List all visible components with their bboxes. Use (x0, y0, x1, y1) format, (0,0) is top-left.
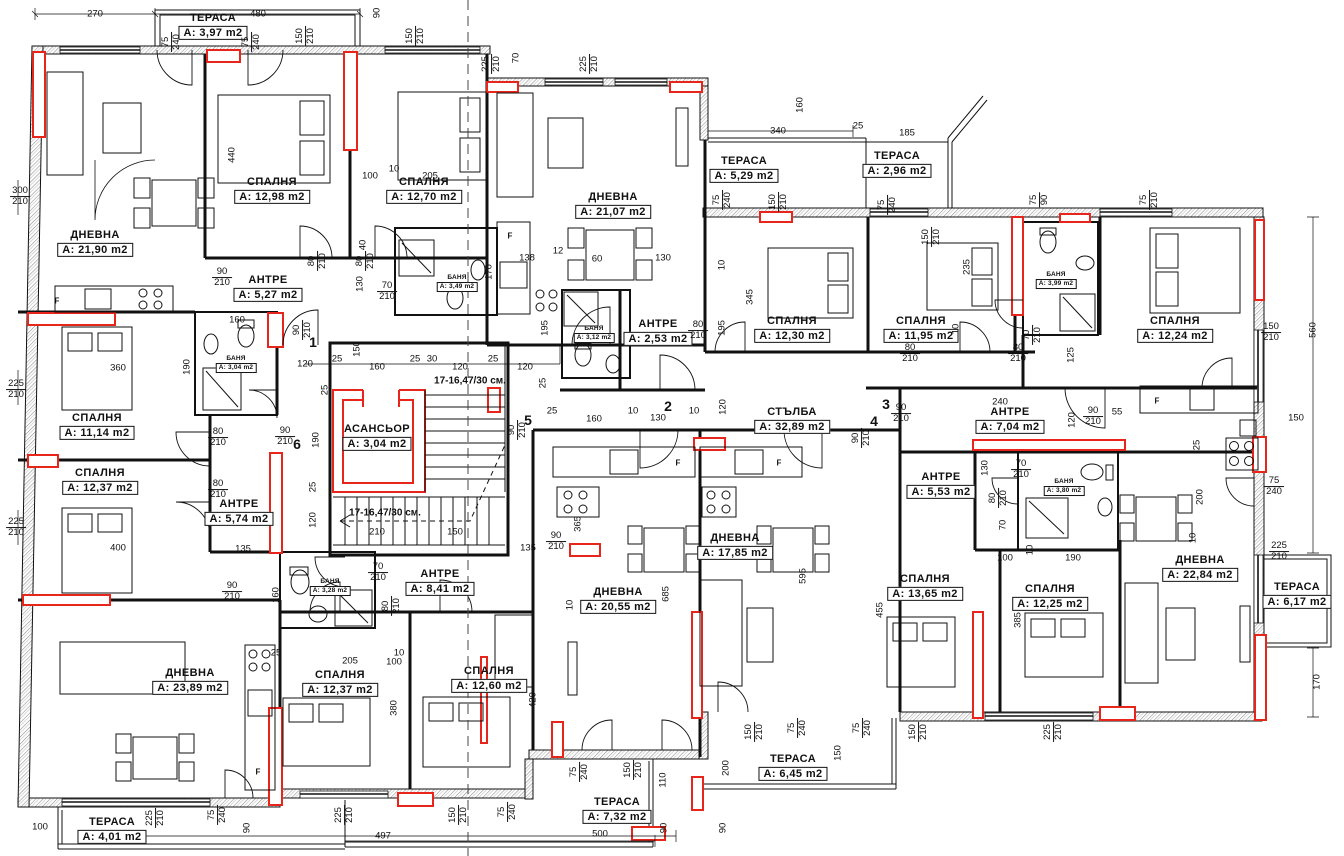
dimension-label: 90 (242, 823, 253, 834)
dimension-label: 120 (308, 512, 319, 528)
dimension-label: 360 (110, 363, 126, 374)
dimension-label: 400 (110, 543, 126, 554)
room-area: A: 12,70 m2 (386, 190, 462, 205)
room-label: СПАЛНЯA: 12,37 m2 (302, 669, 378, 697)
dimension-label: 10 (1188, 533, 1199, 544)
dimension-label: 90 (718, 823, 729, 834)
room-label: ТЕРАСАA: 3,97 m2 (178, 12, 247, 40)
dimension-label: 225210 (6, 379, 26, 401)
dimension-label: 200 (1195, 489, 1206, 505)
dimension-label: 90210 (212, 267, 232, 289)
room-area: A: 21,07 m2 (575, 205, 651, 220)
dimension-label: 25 (271, 648, 282, 659)
room-name: ДНЕВНА (1162, 554, 1238, 567)
room-name: СПАЛНЯ (234, 176, 310, 189)
dimension-label: 80210 (208, 479, 228, 501)
room-name: СПАЛНЯ (887, 573, 963, 586)
room-label: АНТРЕA: 7,04 m2 (975, 406, 1044, 434)
dimension-label: 80210 (208, 427, 228, 449)
room-area: A: 22,84 m2 (1162, 568, 1238, 583)
dimension-label: 90210 (222, 581, 242, 603)
room-label: ТЕРАСАA: 4,01 m2 (77, 816, 146, 844)
room-area: A: 12,30 m2 (754, 329, 830, 344)
dimension-label: 80210 (988, 488, 1010, 508)
dimension-label: 195 (540, 320, 551, 336)
dimension-label: 75240 (241, 32, 263, 52)
room-area: A: 5,27 m2 (233, 288, 302, 303)
fridge-letter: F (1155, 397, 1160, 406)
dimension-label: 150210 (908, 722, 930, 742)
stair-note: 17-16,47/30 см. (349, 508, 421, 519)
dimension-label: 340 (770, 126, 786, 137)
dimension-label: 10 (394, 648, 405, 659)
room-name: БАНЯ (216, 355, 257, 362)
dimension-label: 120 (452, 362, 468, 373)
apartment-number: 6 (293, 436, 301, 452)
room-name: БАНЯ (310, 578, 351, 585)
dimension-label: 55 (1112, 407, 1123, 418)
room-area: A: 11,95 m2 (884, 329, 959, 344)
dimension-label: 160 (795, 97, 806, 113)
room-name: АНТРЕ (405, 568, 474, 581)
room-label: СПАЛНЯA: 12,37 m2 (62, 467, 138, 495)
dimension-label: 10 (628, 406, 639, 417)
dimension-label: 120 (297, 359, 313, 370)
dimension-label: 270 (87, 9, 103, 20)
room-label: СПАЛНЯA: 13,65 m2 (887, 573, 963, 601)
dimension-label: 80210 (900, 343, 920, 365)
apartment-number: 4 (870, 413, 878, 429)
dimension-label: 135 (520, 543, 536, 554)
dimension-label: 25 (410, 354, 421, 365)
room-name: СПАЛНЯ (754, 315, 830, 328)
room-area: A: 3,97 m2 (178, 26, 247, 41)
dimension-label: 150 (1288, 413, 1304, 424)
dimension-label: 300210 (10, 186, 30, 208)
dimension-label: 150210 (768, 192, 790, 212)
apartment-number: 2 (664, 398, 672, 414)
room-label: СПАЛНЯA: 11,95 m2 (884, 315, 959, 343)
dimension-label: 75240 (497, 802, 519, 822)
room-area: A: 21,90 m2 (57, 243, 133, 258)
dimension-label: 130 (650, 413, 666, 424)
apartment-number: 3 (882, 396, 890, 412)
room-label: АСАНСЬОРA: 3,04 m2 (342, 423, 411, 451)
dimension-label: 195 (717, 320, 728, 336)
dimension-label: 210 (369, 527, 385, 538)
room-name: АНТРЕ (975, 406, 1044, 419)
dimension-label: 225210 (145, 808, 167, 828)
dimension-label: 385 (1013, 612, 1024, 628)
room-area: A: 3,28 m2 (310, 587, 351, 596)
dimension-label: 25 (308, 482, 319, 493)
dimension-label: 100 (997, 553, 1013, 564)
dimension-label: 130 (980, 460, 991, 476)
room-name: СТЪЛБА (754, 406, 830, 419)
room-name: БАНЯ (437, 274, 478, 281)
dimension-label: 150210 (921, 227, 943, 247)
dimension-label: 120 (1067, 412, 1078, 428)
dimension-label: 200 (721, 760, 732, 776)
room-label: ДНЕВНАA: 22,84 m2 (1162, 554, 1238, 582)
room-label: ТЕРАСАA: 6,17 m2 (1262, 581, 1331, 609)
dimension-label: 170 (484, 264, 495, 280)
dimension-label: 240 (992, 397, 1008, 408)
dimension-label: 225210 (481, 54, 503, 74)
dimension-label: 150210 (1261, 322, 1281, 344)
dimension-label: 130 (655, 253, 671, 264)
room-area: A: 3,49 m2 (437, 283, 478, 292)
room-label: ТЕРАСАA: 2,96 m2 (862, 150, 931, 178)
dimension-label: 160 (229, 315, 245, 326)
dimension-label: 225210 (579, 54, 601, 74)
dimension-label: 100 (362, 171, 378, 182)
dimension-label: 75210 (1139, 190, 1161, 210)
room-label: АНТРЕA: 8,41 m2 (405, 568, 474, 596)
dimension-label: 225210 (1043, 722, 1065, 742)
dimension-label: 345 (745, 289, 756, 305)
dimension-label: 150 (447, 527, 463, 538)
room-area: A: 3,99 m2 (1036, 280, 1077, 289)
room-name: СПАЛНЯ (1012, 583, 1088, 596)
room-name: ТЕРАСА (862, 150, 931, 163)
dimension-label: 80210 (355, 251, 377, 271)
fridge-letter: F (777, 459, 782, 468)
room-area: A: 17,85 m2 (697, 546, 773, 561)
room-label: СПАЛНЯA: 12,24 m2 (1137, 315, 1213, 343)
room-name: ДНЕВНА (57, 229, 133, 242)
dimension-label: 455 (875, 602, 886, 618)
dimension-label: 90210 (1083, 406, 1103, 428)
dimension-label: 60 (592, 254, 603, 265)
room-name: ТЕРАСА (709, 155, 778, 168)
room-name: АНТРЕ (233, 274, 302, 287)
dimension-label: 80210 (307, 251, 329, 271)
dimension-label: 125 (1066, 347, 1077, 363)
dimension-label: 560 (1308, 322, 1319, 338)
dimension-label: 500 (592, 829, 608, 840)
labels-overlay: ТЕРАСАA: 3,97 m2СПАЛНЯA: 12,98 m2СПАЛНЯA… (0, 0, 1344, 856)
dimension-label: 205 (342, 656, 358, 667)
dimension-label: 80210 (688, 320, 708, 342)
dimension-label: 480 (250, 9, 266, 20)
dimension-label: 70210 (1011, 459, 1031, 481)
dimension-label: 190 (182, 359, 193, 375)
dimension-label: 380 (389, 700, 400, 716)
dimension-label: 10 (389, 164, 400, 175)
dimension-label: 120 (718, 399, 729, 415)
room-label: АНТРЕA: 5,74 m2 (204, 498, 273, 526)
room-label: СТЪЛБАA: 32,89 m2 (754, 406, 830, 434)
dimension-label: 190 (311, 432, 322, 448)
dimension-label: 10 (1025, 545, 1036, 556)
room-area: A: 3,80 m2 (1044, 487, 1085, 496)
dimension-label: 90210 (891, 403, 911, 425)
room-label: БАНЯA: 3,49 m2 (437, 274, 478, 292)
dimension-label: 190 (1065, 553, 1081, 564)
apartment-number: 1 (309, 334, 317, 350)
dimension-label: 150210 (295, 26, 317, 46)
room-area: A: 3,12 m2 (574, 334, 615, 343)
dimension-label: 10 (565, 600, 576, 611)
dimension-label: 150210 (744, 722, 766, 742)
dimension-label: 80210 (381, 596, 403, 616)
room-label: СПАЛНЯA: 12,25 m2 (1012, 583, 1088, 611)
dimension-label: 150210 (405, 26, 427, 46)
room-label: АНТРЕA: 2,53 m2 (623, 318, 692, 346)
room-area: A: 32,89 m2 (754, 420, 830, 435)
room-area: A: 20,55 m2 (580, 600, 656, 615)
room-name: БАНЯ (1044, 478, 1085, 485)
room-label: ДНЕВНАA: 21,07 m2 (575, 191, 651, 219)
dimension-label: 90 (659, 823, 670, 834)
room-name: АСАНСЬОР (342, 423, 411, 436)
room-label: СПАЛНЯA: 11,14 m2 (60, 412, 135, 440)
dimension-label: 70210 (1022, 325, 1044, 345)
dimension-label: 7590 (1029, 193, 1051, 208)
dimension-label: 185 (899, 128, 915, 139)
room-area: A: 12,98 m2 (234, 190, 310, 205)
dimension-label: 225210 (6, 517, 26, 539)
room-name: БАНЯ (574, 325, 615, 332)
room-name: ДНЕВНА (152, 667, 228, 680)
dimension-label: 75240 (877, 195, 899, 215)
room-area: A: 12,24 m2 (1137, 329, 1213, 344)
dimension-label: 10 (951, 324, 962, 335)
dimension-label: 70210 (377, 281, 397, 303)
floor-plan: ТЕРАСАA: 3,97 m2СПАЛНЯA: 12,98 m2СПАЛНЯA… (0, 0, 1344, 856)
dimension-label: 75240 (1264, 476, 1284, 498)
dimension-label: 90 (372, 8, 383, 19)
dimension-label: 25 (538, 378, 549, 389)
dimension-label: 160 (586, 414, 602, 425)
room-label: ТЕРАСАA: 7,32 m2 (582, 796, 651, 824)
room-area: A: 6,17 m2 (1262, 595, 1331, 610)
dimension-label: 685 (661, 586, 672, 602)
room-name: ТЕРАСА (77, 816, 146, 829)
room-area: A: 5,74 m2 (204, 512, 273, 527)
room-name: СПАЛНЯ (60, 412, 135, 425)
dimension-label: 25 (332, 354, 343, 365)
dimension-label: 70 (998, 520, 1009, 531)
room-area: A: 5,53 m2 (906, 485, 975, 500)
dimension-label: 135 (235, 544, 251, 555)
fridge-letter: F (55, 297, 60, 306)
room-name: АНТРЕ (906, 471, 975, 484)
room-area: A: 7,32 m2 (582, 810, 651, 825)
dimension-label: 170 (1312, 674, 1323, 690)
room-area: A: 11,14 m2 (60, 426, 135, 441)
dimension-label: 30 (427, 354, 438, 365)
dimension-label: 70 (511, 53, 522, 64)
room-name: ТЕРАСА (178, 12, 247, 25)
room-label: БАНЯA: 3,28 m2 (310, 578, 351, 596)
room-label: СПАЛНЯA: 12,60 m2 (451, 665, 527, 693)
room-name: ДНЕВНА (580, 586, 656, 599)
room-area: A: 5,29 m2 (709, 169, 778, 184)
dimension-label: 160 (271, 587, 282, 603)
room-label: ДНЕВНАA: 23,89 m2 (152, 667, 228, 695)
dimension-label: 75240 (787, 718, 809, 738)
dimension-label: 75240 (852, 718, 874, 738)
dimension-label: 420 (528, 692, 539, 708)
room-label: СПАЛНЯA: 12,30 m2 (754, 315, 830, 343)
dimension-label: 25 (320, 385, 331, 396)
dimension-label: 90210 (275, 426, 295, 448)
room-name: ТЕРАСА (1262, 581, 1331, 594)
dimension-label: 25 (547, 406, 558, 417)
room-area: A: 3,04 m2 (216, 364, 257, 373)
room-area: A: 3,04 m2 (342, 437, 411, 452)
room-name: СПАЛНЯ (1137, 315, 1213, 328)
dimension-label: 440 (227, 147, 238, 163)
room-label: БАНЯA: 3,80 m2 (1044, 478, 1085, 496)
dimension-label: 225210 (334, 805, 356, 825)
dimension-label: 138 (519, 253, 535, 264)
dimension-label: 225210 (1269, 541, 1289, 563)
room-label: ТЕРАСАA: 5,29 m2 (709, 155, 778, 183)
room-label: СПАЛНЯA: 12,98 m2 (234, 176, 310, 204)
room-name: ТЕРАСА (758, 753, 827, 766)
room-name: ДНЕВНА (697, 532, 773, 545)
room-area: A: 8,41 m2 (405, 582, 474, 597)
room-name: СПАЛНЯ (62, 467, 138, 480)
room-area: A: 12,37 m2 (302, 683, 378, 698)
apartment-number: 5 (524, 412, 532, 428)
dimension-label: 40 (358, 240, 369, 251)
dimension-label: 150210 (448, 805, 470, 825)
dimension-label: 75240 (712, 190, 734, 210)
fridge-letter: F (508, 232, 513, 241)
room-label: ДНЕВНАA: 17,85 m2 (697, 532, 773, 560)
dimension-label: 497 (375, 831, 391, 842)
dimension-label: 150210 (623, 760, 645, 780)
room-name: АНТРЕ (623, 318, 692, 331)
dimension-label: 25 (488, 354, 499, 365)
dimension-label: 80210 (1008, 343, 1028, 365)
room-label: АНТРЕA: 5,27 m2 (233, 274, 302, 302)
dimension-label: 130 (355, 276, 366, 292)
room-area: A: 4,01 m2 (77, 830, 146, 845)
dimension-label: 75240 (569, 762, 591, 782)
room-area: A: 2,53 m2 (623, 332, 692, 347)
dimension-label: 595 (798, 568, 809, 584)
room-area: A: 6,45 m2 (758, 767, 827, 782)
room-area: A: 2,96 m2 (862, 164, 931, 179)
room-name: ТЕРАСА (582, 796, 651, 809)
fridge-letter: F (676, 459, 681, 468)
room-label: ДНЕВНАA: 20,55 m2 (580, 586, 656, 614)
room-label: БАНЯA: 3,99 m2 (1036, 271, 1077, 289)
dimension-label: 70210 (368, 562, 388, 584)
dimension-label: 100 (32, 822, 48, 833)
dimension-label: 25 (853, 121, 864, 132)
dimension-label: 120 (517, 362, 533, 373)
room-name: БАНЯ (1036, 271, 1077, 278)
room-label: БАНЯA: 3,12 m2 (574, 325, 615, 343)
dimension-label: 150 (352, 341, 363, 357)
dimension-label: 110 (658, 772, 669, 787)
room-area: A: 13,65 m2 (887, 587, 963, 602)
fridge-letter: F (256, 768, 261, 777)
stair-note: 17-16,47/30 см. (434, 376, 506, 387)
dimension-label: 160 (369, 362, 385, 373)
dimension-label: 150 (833, 745, 844, 761)
dimension-label: 10 (689, 406, 700, 417)
dimension-label: 235 (962, 259, 973, 275)
dimension-label: 10 (717, 260, 728, 271)
room-label: ДНЕВНАA: 21,90 m2 (57, 229, 133, 257)
room-label: АНТРЕA: 5,53 m2 (906, 471, 975, 499)
room-area: A: 12,60 m2 (451, 679, 527, 694)
room-area: A: 12,37 m2 (62, 481, 138, 496)
room-area: A: 12,25 m2 (1012, 597, 1088, 612)
dimension-label: 90210 (851, 428, 873, 448)
dimension-label: 205 (422, 171, 438, 182)
dimension-label: 12 (553, 246, 564, 257)
dimension-label: 75240 (207, 805, 229, 825)
room-area: A: 7,04 m2 (975, 420, 1044, 435)
room-label: БАНЯA: 3,04 m2 (216, 355, 257, 373)
dimension-label: 365 (573, 516, 584, 532)
room-name: СПАЛНЯ (884, 315, 959, 328)
room-name: СПАЛНЯ (451, 665, 527, 678)
room-name: СПАЛНЯ (302, 669, 378, 682)
dimension-label: 90210 (546, 531, 566, 553)
dimension-label: 25 (1192, 440, 1203, 451)
room-label: ТЕРАСАA: 6,45 m2 (758, 753, 827, 781)
room-area: A: 23,89 m2 (152, 681, 228, 696)
dimension-label: 75240 (161, 32, 183, 52)
room-name: ДНЕВНА (575, 191, 651, 204)
